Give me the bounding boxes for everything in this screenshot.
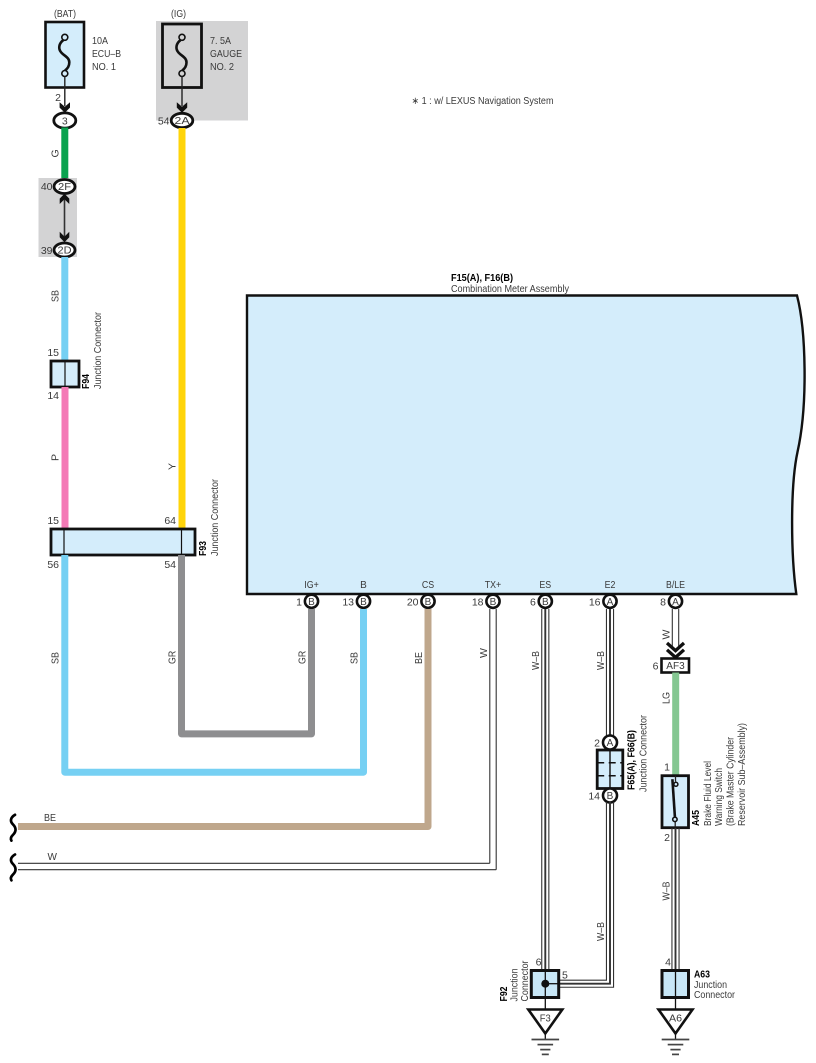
svg-text:W–B: W–B	[595, 922, 607, 941]
svg-text:2A: 2A	[175, 116, 190, 127]
svg-text:∗ 1 : w/ LEXUS Navigation Syst: ∗ 1 : w/ LEXUS Navigation System	[412, 96, 554, 107]
svg-text:40: 40	[41, 181, 53, 193]
svg-text:IG+: IG+	[304, 580, 319, 591]
svg-text:Connector: Connector	[694, 989, 735, 1001]
svg-text:LG: LG	[660, 692, 672, 704]
svg-text:A45: A45	[690, 810, 702, 826]
svg-text:13: 13	[342, 597, 354, 609]
svg-text:(IG): (IG)	[171, 8, 186, 20]
svg-text:G: G	[50, 149, 62, 157]
svg-text:F3: F3	[540, 1014, 551, 1025]
svg-text:BE: BE	[44, 813, 56, 824]
svg-text:16: 16	[589, 597, 601, 609]
svg-text:F65(A), F66(B): F65(A), F66(B)	[625, 730, 637, 790]
svg-text:10A: 10A	[92, 35, 108, 47]
svg-text:B: B	[308, 597, 315, 608]
svg-text:Junction Connector: Junction Connector	[209, 479, 221, 556]
svg-text:ES: ES	[539, 580, 551, 591]
svg-text:14: 14	[588, 791, 600, 803]
svg-text:NO. 1: NO. 1	[92, 61, 116, 73]
svg-text:SB: SB	[348, 652, 360, 664]
svg-text:15: 15	[47, 347, 59, 359]
svg-text:B: B	[425, 597, 432, 608]
svg-text:8: 8	[660, 597, 666, 609]
svg-text:Junction Connector: Junction Connector	[92, 312, 104, 389]
svg-text:GAUGE: GAUGE	[210, 48, 242, 60]
svg-text:5: 5	[562, 970, 568, 982]
svg-text:TX+: TX+	[485, 580, 502, 591]
svg-text:B: B	[542, 597, 549, 608]
svg-text:54: 54	[164, 559, 176, 571]
svg-text:56: 56	[47, 559, 59, 571]
svg-text:A: A	[607, 738, 614, 749]
svg-text:2: 2	[664, 832, 670, 844]
svg-text:CS: CS	[422, 580, 435, 591]
svg-text:B: B	[490, 597, 497, 608]
svg-text:B: B	[607, 791, 614, 802]
svg-text:20: 20	[407, 597, 419, 609]
svg-text:Combination Meter Assembly: Combination Meter Assembly	[451, 283, 570, 295]
svg-text:54: 54	[158, 115, 170, 127]
svg-text:18: 18	[472, 597, 484, 609]
svg-text:W: W	[660, 630, 672, 640]
svg-text:Connector: Connector	[519, 960, 531, 1001]
svg-text:2: 2	[55, 92, 61, 104]
svg-text:2: 2	[594, 738, 600, 750]
svg-text:7. 5A: 7. 5A	[210, 35, 231, 47]
svg-text:6: 6	[536, 957, 542, 969]
svg-text:A: A	[607, 597, 614, 608]
svg-text:15: 15	[47, 515, 59, 527]
svg-text:W: W	[478, 648, 490, 658]
svg-text:P: P	[50, 454, 62, 461]
svg-text:14: 14	[47, 390, 59, 402]
svg-text:ECU–B: ECU–B	[92, 48, 121, 60]
svg-text:6: 6	[530, 597, 536, 609]
svg-text:2F: 2F	[58, 182, 71, 193]
svg-text:NO. 2: NO. 2	[210, 61, 234, 73]
svg-text:B: B	[360, 597, 367, 608]
svg-text:Warning Switch: Warning Switch	[713, 768, 725, 826]
svg-text:F93: F93	[197, 541, 209, 556]
svg-text:E2: E2	[605, 580, 616, 591]
svg-text:64: 64	[164, 515, 176, 527]
svg-text:3: 3	[62, 115, 68, 127]
svg-text:AF3: AF3	[666, 661, 685, 672]
svg-text:B/LE: B/LE	[666, 580, 685, 591]
svg-text:W–B: W–B	[530, 651, 542, 670]
svg-text:SB: SB	[50, 290, 62, 302]
svg-text:(BAT): (BAT)	[54, 8, 76, 20]
svg-text:1: 1	[296, 597, 302, 609]
svg-text:(Brake Master Cylinder: (Brake Master Cylinder	[725, 737, 737, 826]
svg-text:BE: BE	[413, 652, 425, 664]
svg-text:GR: GR	[166, 650, 178, 664]
svg-text:F94: F94	[80, 374, 92, 389]
svg-text:2D: 2D	[58, 246, 72, 257]
svg-text:Junction Connector: Junction Connector	[637, 715, 649, 792]
svg-text:B: B	[360, 580, 367, 591]
svg-text:Reservoir Sub–Assembly): Reservoir Sub–Assembly)	[736, 723, 748, 826]
svg-text:SB: SB	[50, 652, 62, 664]
svg-text:W: W	[48, 852, 58, 863]
svg-text:Y: Y	[166, 463, 178, 470]
svg-text:4: 4	[665, 957, 671, 969]
svg-text:A6: A6	[669, 1014, 682, 1025]
svg-text:6: 6	[653, 661, 659, 673]
svg-text:W–B: W–B	[595, 651, 607, 670]
svg-text:Brake Fluid Level: Brake Fluid Level	[702, 761, 714, 826]
svg-text:39: 39	[41, 245, 53, 257]
svg-text:A: A	[672, 597, 679, 608]
svg-text:GR: GR	[296, 650, 308, 664]
svg-text:W–B: W–B	[660, 882, 672, 901]
svg-text:1: 1	[664, 761, 670, 773]
